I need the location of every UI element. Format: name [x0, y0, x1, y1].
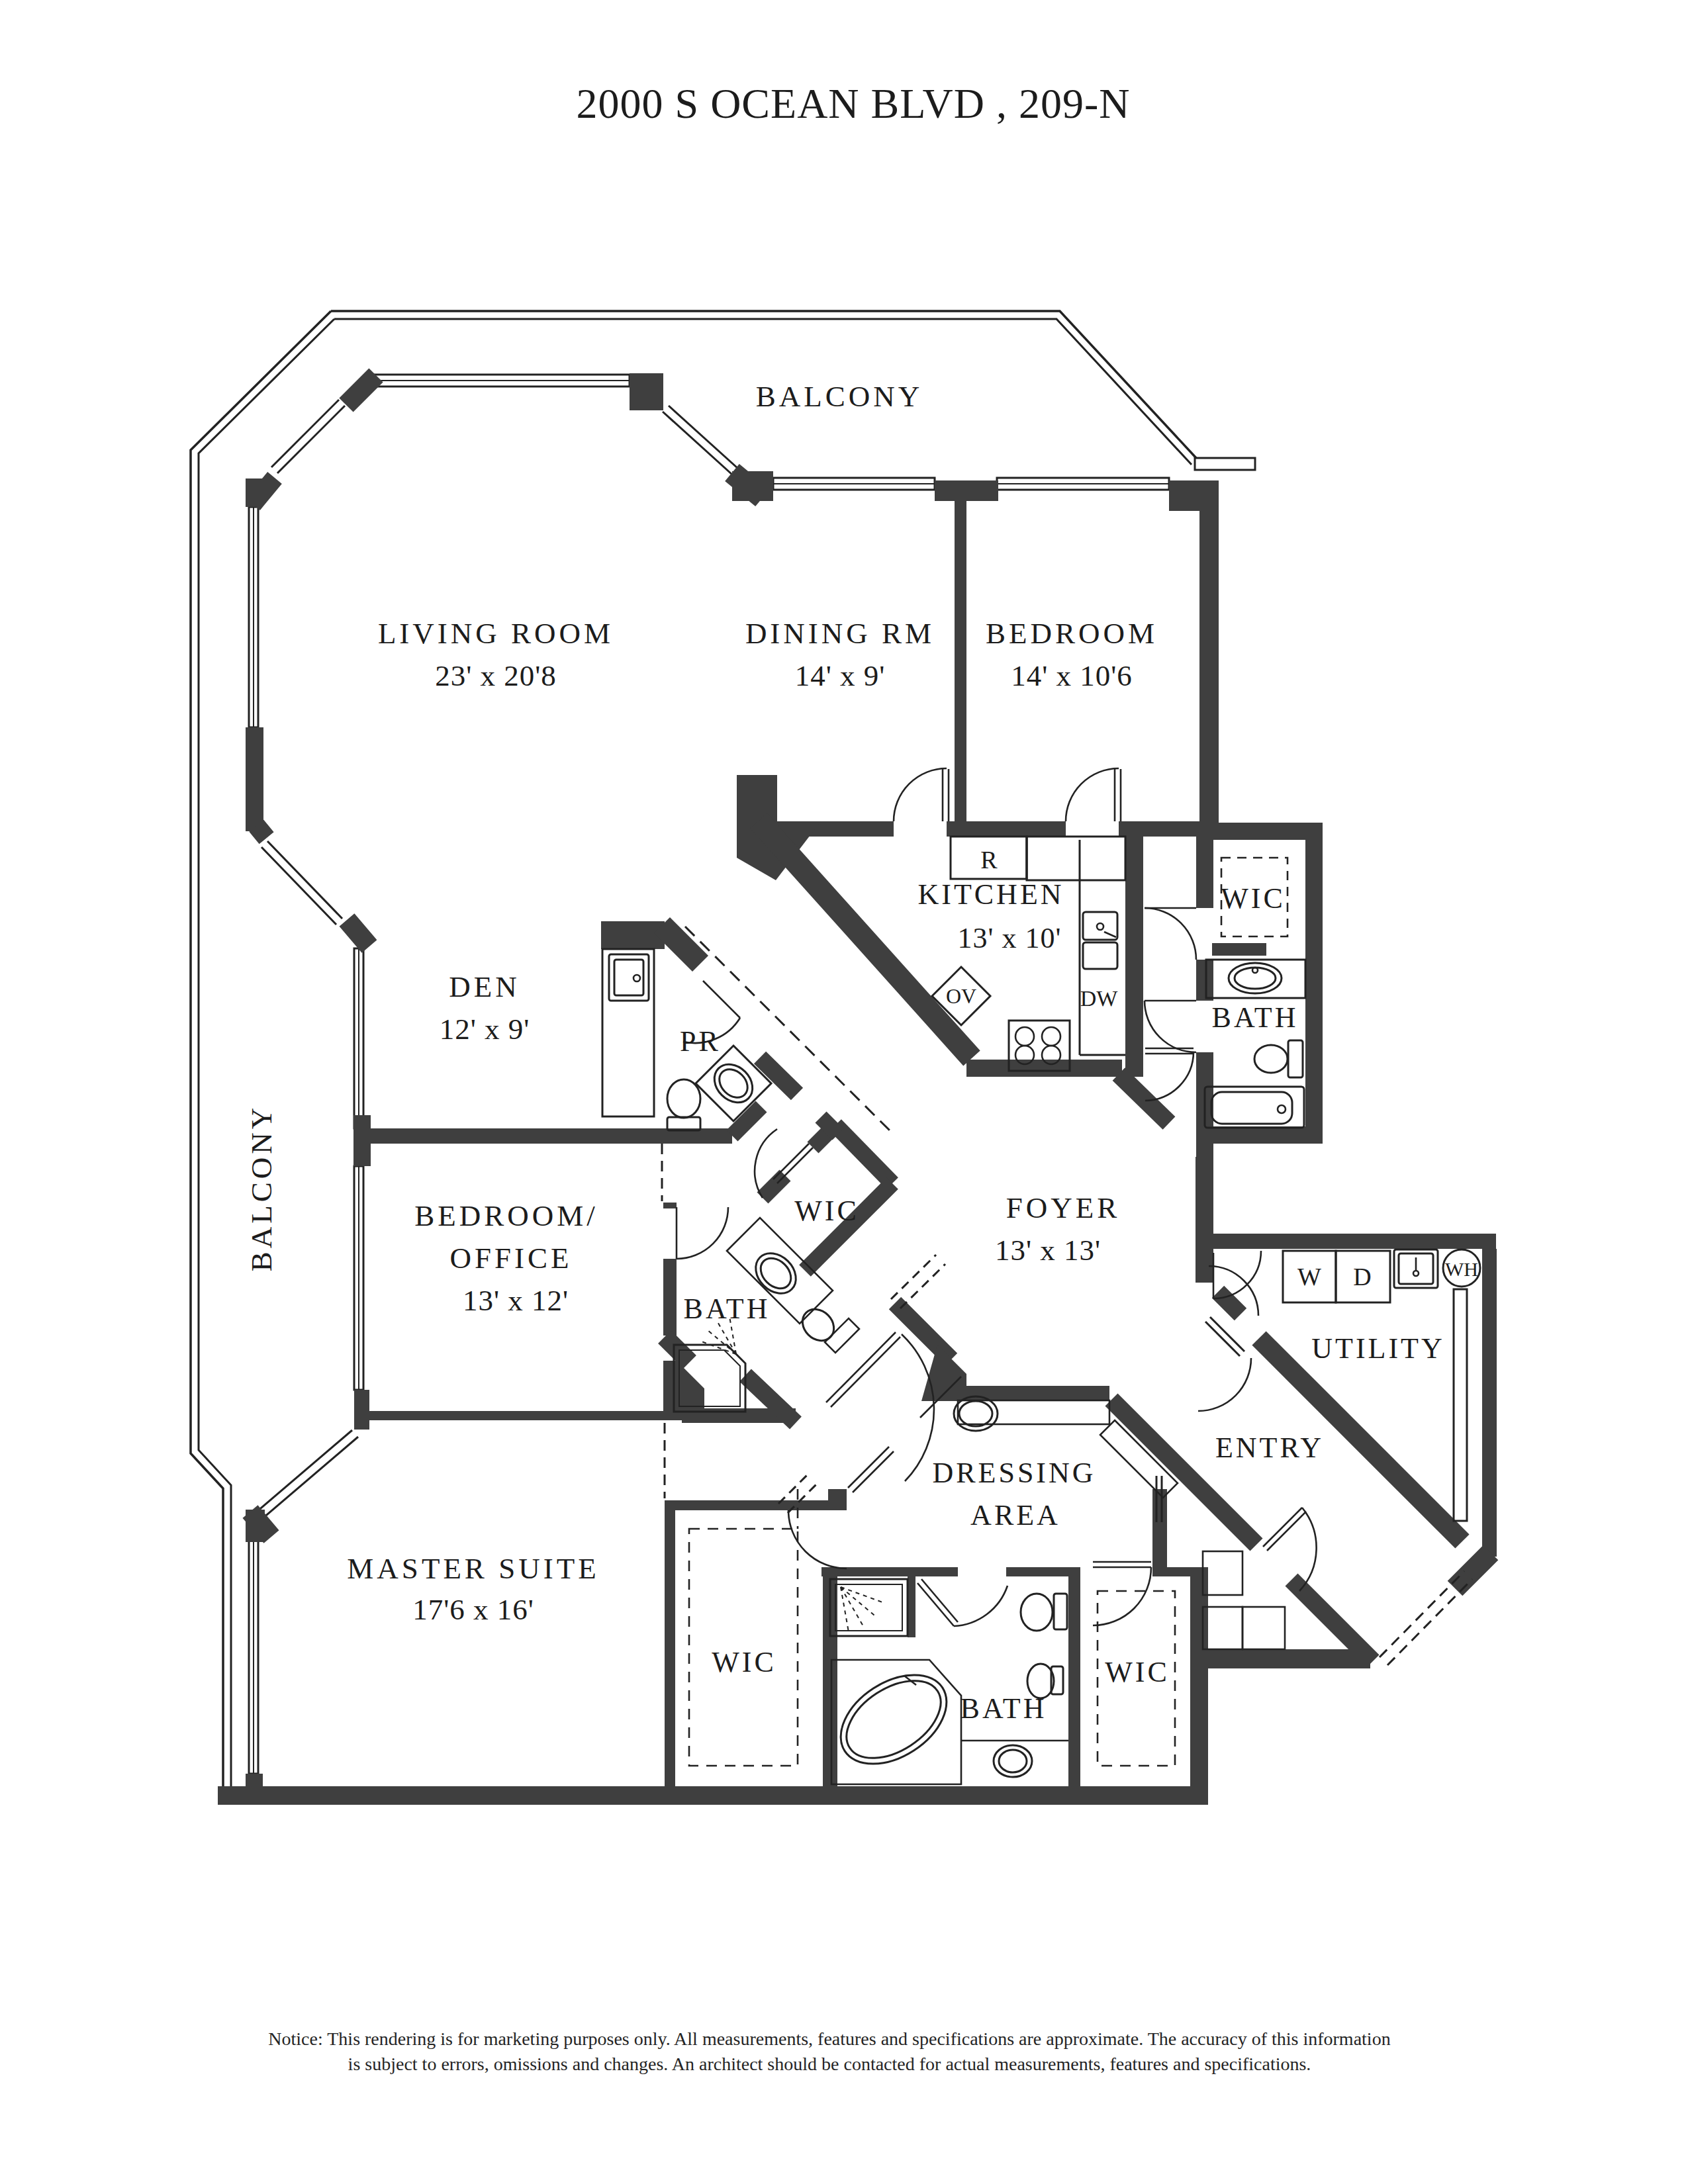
svg-text:DW: DW [1080, 986, 1119, 1011]
svg-text:13' x 13': 13' x 13' [995, 1234, 1101, 1267]
svg-text:W: W [1297, 1263, 1321, 1291]
svg-text:WIC: WIC [1105, 1656, 1170, 1688]
svg-text:WIC: WIC [712, 1646, 776, 1678]
svg-text:17'6 x 16': 17'6 x 16' [412, 1593, 534, 1626]
svg-text:BEDROOM/: BEDROOM/ [414, 1199, 598, 1232]
svg-text:DEN: DEN [449, 970, 520, 1003]
svg-text:OFFICE: OFFICE [449, 1242, 572, 1275]
svg-text:R: R [980, 846, 998, 874]
svg-text:23' x 20'8: 23' x 20'8 [435, 659, 557, 692]
svg-text:13' x 10': 13' x 10' [958, 922, 1062, 954]
svg-text:WIC: WIC [1221, 882, 1286, 915]
svg-text:14' x 9': 14' x 9' [795, 659, 886, 692]
svg-text:BALCONY: BALCONY [245, 1105, 278, 1272]
svg-text:DINING RM: DINING RM [745, 617, 935, 650]
svg-text:BEDROOM: BEDROOM [986, 617, 1158, 650]
svg-text:ENTRY: ENTRY [1215, 1432, 1324, 1464]
svg-text:WH: WH [1445, 1258, 1478, 1280]
svg-text:LIVING ROOM: LIVING ROOM [378, 617, 614, 650]
svg-text:BALCONY: BALCONY [756, 380, 923, 413]
svg-text:DRESSING: DRESSING [932, 1457, 1096, 1489]
svg-text:13' x 12': 13' x 12' [463, 1284, 569, 1317]
svg-text:BATH: BATH [961, 1692, 1047, 1725]
svg-text:BATH: BATH [1212, 1001, 1299, 1034]
svg-text:14' x 10'6: 14' x 10'6 [1011, 659, 1133, 692]
svg-text:PR: PR [680, 1025, 721, 1058]
svg-text:FOYER: FOYER [1006, 1191, 1121, 1224]
svg-text:MASTER SUITE: MASTER SUITE [347, 1552, 599, 1585]
svg-text:AREA: AREA [970, 1499, 1060, 1531]
svg-text:WIC: WIC [794, 1195, 859, 1227]
svg-text:UTILITY: UTILITY [1311, 1332, 1445, 1365]
svg-text:OV: OV [946, 984, 976, 1008]
svg-text:BATH: BATH [684, 1293, 771, 1325]
svg-text:D: D [1353, 1263, 1371, 1291]
svg-text:12' x 9': 12' x 9' [440, 1013, 530, 1046]
svg-text:KITCHEN: KITCHEN [917, 878, 1064, 911]
